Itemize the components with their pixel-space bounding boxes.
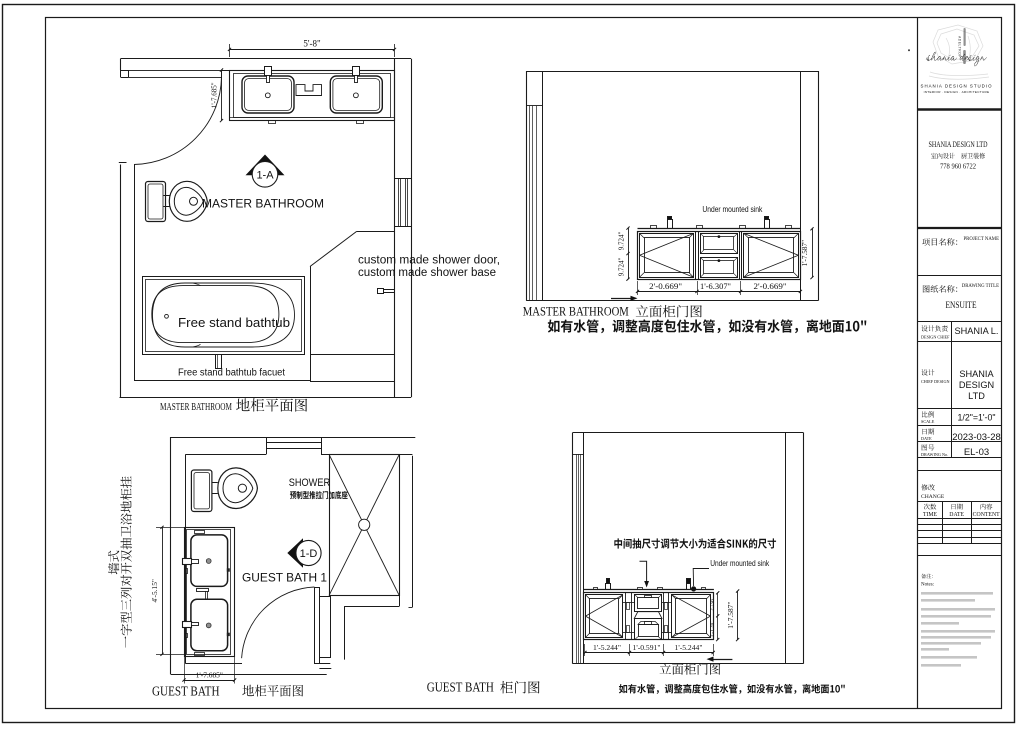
svg-text:SHANIA DESIGN LTD: SHANIA DESIGN LTD — [929, 139, 988, 149]
svg-text:DATE: DATE — [921, 436, 932, 441]
svg-text:778 960 6722: 778 960 6722 — [940, 163, 976, 171]
svg-text:LTD: LTD — [968, 391, 985, 401]
svg-text:2.756": 2.756" — [710, 597, 716, 611]
svg-text:EL-03: EL-03 — [964, 447, 989, 458]
svg-text:1'-1.26": 1'-1.26" — [710, 621, 716, 637]
svg-text:CONTENT: CONTENT — [973, 512, 1001, 518]
svg-text:9.724": 9.724" — [618, 232, 626, 251]
svg-text:custom made shower base: custom made shower base — [358, 267, 496, 279]
svg-text:CHANGE: CHANGE — [921, 494, 945, 500]
svg-text:DRAWING No.: DRAWING No. — [921, 452, 948, 457]
svg-text:Under mounted sink: Under mounted sink — [710, 559, 770, 568]
svg-text:2'-0.669": 2'-0.669" — [754, 281, 787, 291]
svg-text:MASTER BATHROOM: MASTER BATHROOM — [160, 402, 232, 413]
svg-text:ADELTROP: ADELTROP — [958, 36, 962, 58]
svg-text:INTERIOR · DESIGN · ARCHITECTU: INTERIOR · DESIGN · ARCHITECTURE — [924, 90, 990, 94]
svg-text:1-D: 1-D — [300, 548, 318, 560]
svg-text:DESIGN CHIEF: DESIGN CHIEF — [921, 335, 950, 340]
svg-text:MASTER BATHROOM: MASTER BATHROOM — [523, 304, 629, 319]
svg-text:SHANIA L.: SHANIA L. — [955, 326, 999, 336]
svg-text:1'-7.587": 1'-7.587" — [726, 602, 735, 629]
svg-text:4'-5.15": 4'-5.15" — [150, 579, 159, 602]
svg-text:1'-7.685": 1'-7.685" — [211, 82, 219, 108]
svg-text:TIME: TIME — [923, 512, 938, 518]
svg-text:SHANIA DESIGN STUDIO: SHANIA DESIGN STUDIO — [921, 84, 993, 89]
svg-text:Free stand bathtub facuet: Free stand bathtub facuet — [178, 368, 285, 379]
svg-text:DATE: DATE — [949, 512, 964, 518]
svg-text:9.724": 9.724" — [618, 258, 626, 277]
svg-text:Under mounted sink: Under mounted sink — [702, 205, 763, 214]
svg-text:SHANIA: SHANIA — [959, 369, 994, 379]
svg-text:1'-5.244": 1'-5.244" — [593, 643, 621, 652]
svg-text:ENSUITE: ENSUITE — [946, 300, 977, 310]
svg-text:DRAWING TITLE: DRAWING TITLE — [962, 284, 999, 289]
svg-text:1'-6.307": 1'-6.307" — [700, 281, 731, 291]
svg-text:1-A: 1-A — [256, 169, 274, 181]
svg-text:SHOWER: SHOWER — [289, 477, 330, 489]
svg-text:2'-0.669": 2'-0.669" — [649, 281, 682, 291]
svg-text:GUEST BATH: GUEST BATH — [152, 684, 220, 699]
svg-text:GUEST BATH: GUEST BATH — [427, 681, 494, 696]
svg-text:Notes:: Notes: — [921, 583, 934, 588]
svg-text:1'-5.244": 1'-5.244" — [675, 643, 703, 652]
svg-text:1'-0.591": 1'-0.591" — [633, 643, 661, 652]
svg-text:1'-7.685": 1'-7.685" — [196, 671, 223, 680]
svg-text:GUEST BATH 1: GUEST BATH 1 — [242, 571, 327, 585]
svg-text:MASTER BATHROOM: MASTER BATHROOM — [202, 197, 324, 211]
svg-text:1'-7.587": 1'-7.587" — [801, 240, 809, 266]
svg-text:1/2"=1'-0": 1/2"=1'-0" — [957, 413, 995, 423]
svg-text:Free stand bathtub: Free stand bathtub — [178, 315, 290, 330]
svg-text:SCALE: SCALE — [921, 419, 935, 424]
svg-text:custom made shower door,: custom made shower door, — [358, 255, 500, 267]
svg-text:CHIEF DESIGN: CHIEF DESIGN — [921, 379, 950, 384]
svg-text:5'-8": 5'-8" — [303, 39, 321, 49]
svg-text:DESIGN: DESIGN — [959, 380, 994, 390]
svg-text:PROJECT NAME: PROJECT NAME — [964, 237, 1000, 242]
